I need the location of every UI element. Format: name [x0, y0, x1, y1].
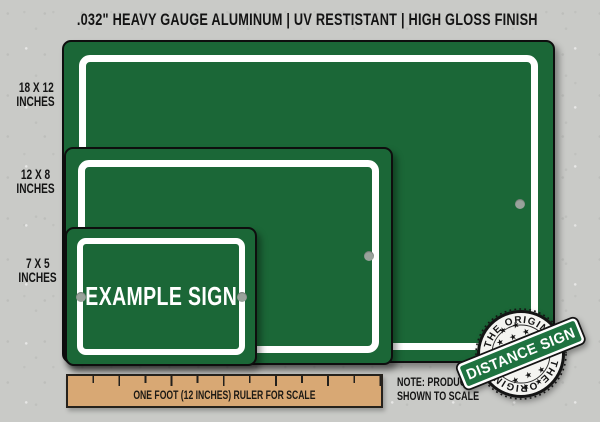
size-value: 12 X 8 [21, 168, 50, 182]
ruler-ticks-icon [68, 376, 381, 386]
mounting-hole-icon [237, 292, 247, 302]
example-sign-text: EXAMPLE SIGN [60, 281, 262, 312]
mounting-hole-icon [364, 251, 374, 261]
size-unit: INCHES [17, 95, 55, 109]
size-unit: INCHES [17, 182, 55, 196]
size-unit: INCHES [19, 271, 57, 285]
mounting-hole-icon [515, 199, 525, 209]
size-label-7x5: 7 X 5 INCHES [6, 257, 70, 285]
size-value: 18 X 12 [19, 81, 54, 95]
mounting-hole-icon [76, 292, 86, 302]
page-title: .032" HEAVY GAUGE ALUMINUM | UV RESTISTA… [0, 10, 600, 30]
ruler-label: ONE FOOT (12 INCHES) RULER FOR SCALE [68, 390, 381, 402]
distance-sign-stamp-badge: THE ORIGINAL THE ORIGINAL ★ ★ ★ ★ ★ DIST… [454, 287, 588, 421]
scale-ruler: ONE FOOT (12 INCHES) RULER FOR SCALE [66, 374, 383, 408]
size-value: 7 X 5 [26, 257, 50, 271]
sign-7x5: EXAMPLE SIGN [65, 227, 257, 366]
size-label-18x12: 18 X 12 INCHES [4, 81, 68, 109]
page-title-text: .032" HEAVY GAUGE ALUMINUM | UV RESTISTA… [77, 10, 538, 30]
size-label-12x8: 12 X 8 INCHES [4, 168, 68, 196]
